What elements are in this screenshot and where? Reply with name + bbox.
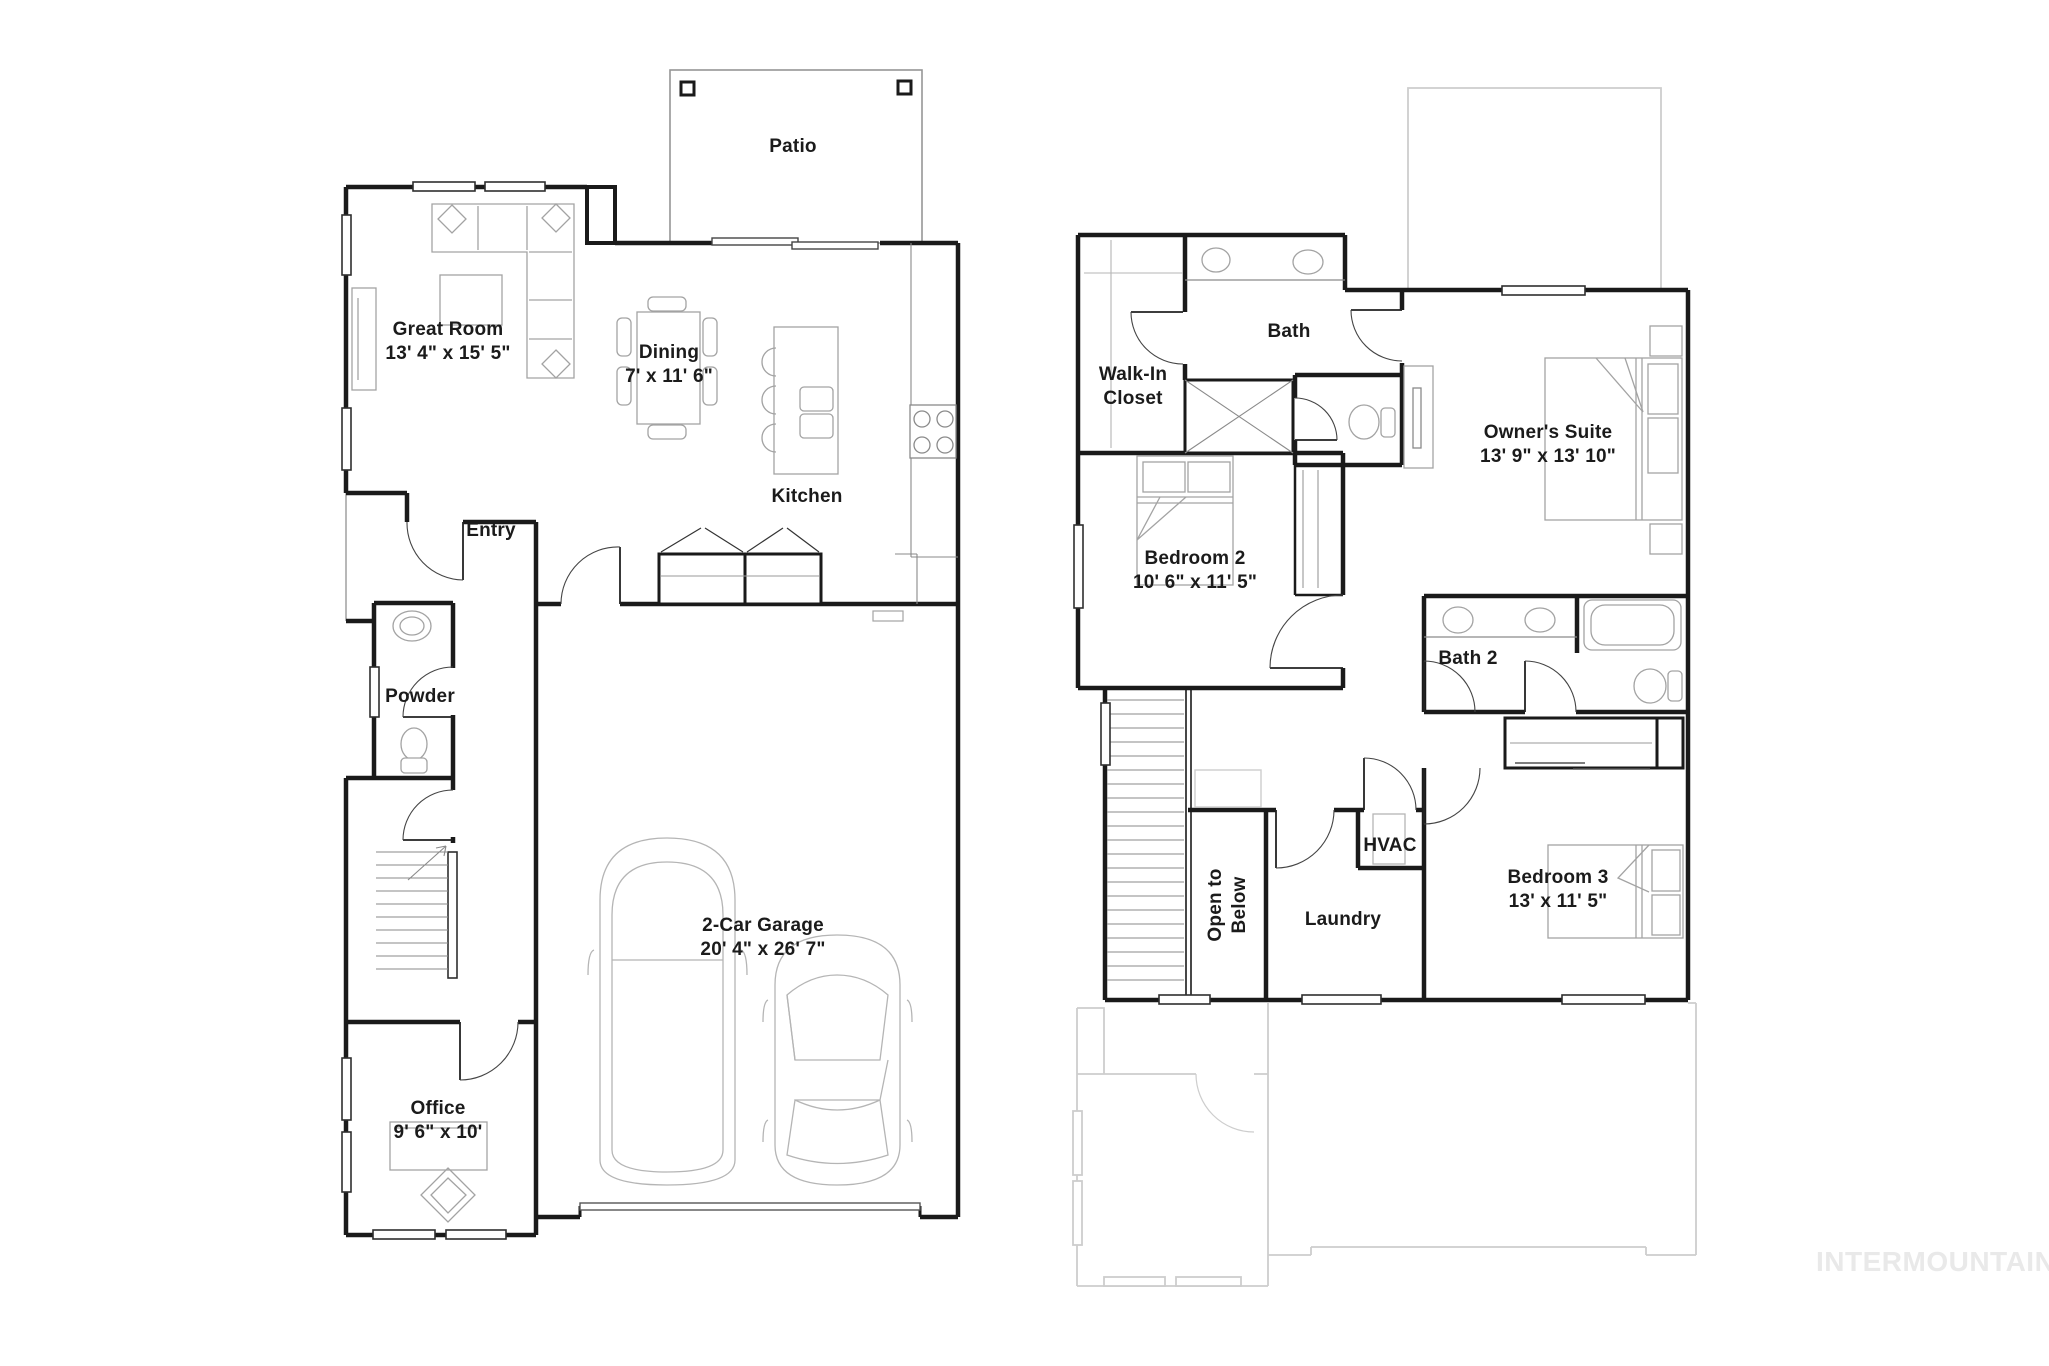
hvac-label: HVAC xyxy=(1363,834,1416,858)
room-dims: 9' 6" x 10' xyxy=(394,1121,483,1145)
room-dims: 20' 4" x 26' 7" xyxy=(700,938,825,962)
kitchen-island-icon xyxy=(762,327,838,474)
powder-toilet-icon xyxy=(401,728,427,773)
entry-label: Entry xyxy=(466,519,516,543)
bath2-toilet-icon xyxy=(1634,669,1682,703)
room-name: Entry xyxy=(466,519,516,543)
shower-icon xyxy=(1185,380,1293,453)
bath-vanity-icon xyxy=(1185,248,1345,280)
closet-shelves xyxy=(1084,240,1183,448)
stairs-second-floor xyxy=(1107,700,1184,980)
garage-step xyxy=(873,611,903,621)
second-floor xyxy=(1073,88,1696,1286)
first-floor xyxy=(342,70,958,1239)
watermark: INTERMOUNTAIN xyxy=(1816,1246,2049,1278)
powder-sink-icon xyxy=(393,611,431,641)
first-floor-doors xyxy=(403,522,620,1080)
sliding-door xyxy=(712,238,878,249)
bath-label: Bath xyxy=(1267,320,1310,344)
room-name: Bath 2 xyxy=(1438,647,1497,671)
garage-door xyxy=(580,1203,920,1217)
hall-closet-second xyxy=(1295,465,1343,595)
patio-label: Patio xyxy=(769,135,816,159)
room-name: Dining xyxy=(625,341,713,365)
bathtub-icon xyxy=(1584,600,1681,650)
roof-outline xyxy=(1408,88,1661,290)
open-to-below-label: Open to Below xyxy=(1204,868,1252,941)
room-name: Below xyxy=(1228,868,1252,941)
office-label: Office 9' 6" x 10' xyxy=(394,1097,483,1145)
kitchen-label: Kitchen xyxy=(771,485,842,509)
walk-in-closet-label: Walk-In Closet xyxy=(1099,363,1167,411)
closet-door-folds xyxy=(661,528,819,552)
hall-closets xyxy=(659,528,821,604)
cooktop-icon xyxy=(910,405,956,458)
dining-label: Dining 7' x 11' 6" xyxy=(625,341,713,389)
room-name: Patio xyxy=(769,135,816,159)
room-name: Bath xyxy=(1267,320,1310,344)
room-name: Laundry xyxy=(1305,908,1381,932)
great-room-label: Great Room 13' 4" x 15' 5" xyxy=(385,318,510,366)
car-icon xyxy=(763,935,912,1185)
room-name: Bedroom 3 xyxy=(1507,866,1608,890)
dresser-icon xyxy=(1404,366,1433,468)
ghost-floor-outline xyxy=(1073,1003,1696,1286)
garage-label: 2-Car Garage 20' 4" x 26' 7" xyxy=(700,914,825,962)
media-console-icon xyxy=(352,288,376,390)
laundry-label: Laundry xyxy=(1305,908,1381,932)
room-name: Owner's Suite xyxy=(1480,421,1616,445)
island-sink-icon xyxy=(800,387,833,411)
open-to-below-shaft xyxy=(1186,688,1261,1000)
owners-suite-label: Owner's Suite 13' 9" x 13' 10" xyxy=(1480,421,1616,469)
bath2-vanity-icon xyxy=(1424,607,1577,637)
room-name: Open to xyxy=(1204,868,1228,941)
bath2-label: Bath 2 xyxy=(1438,647,1497,671)
room-name: HVAC xyxy=(1363,834,1416,858)
stair-rail xyxy=(448,852,457,978)
office-chair-icon xyxy=(421,1168,475,1222)
room-name: Closet xyxy=(1099,387,1167,411)
powder-label: Powder xyxy=(385,685,455,709)
stair-arrow-icon xyxy=(408,846,446,880)
room-dims: 13' 4" x 15' 5" xyxy=(385,342,510,366)
room-name: 2-Car Garage xyxy=(700,914,825,938)
room-dims: 7' x 11' 6" xyxy=(625,365,713,389)
room-dims: 13' 9" x 13' 10" xyxy=(1480,445,1616,469)
room-dims: 13' x 11' 5" xyxy=(1507,890,1608,914)
truck-icon xyxy=(588,838,747,1185)
room-name: Kitchen xyxy=(771,485,842,509)
room-name: Office xyxy=(394,1097,483,1121)
bedroom2-label: Bedroom 2 10' 6" x 11' 5" xyxy=(1133,547,1257,595)
wall-jog xyxy=(587,187,615,243)
floorplan-page: Patio Great Room 13' 4" x 15' 5" Dining … xyxy=(0,0,2049,1366)
wc-toilet-icon xyxy=(1349,405,1395,439)
patio-post-icon xyxy=(898,81,911,94)
room-name: Bedroom 2 xyxy=(1133,547,1257,571)
room-name: Walk-In xyxy=(1099,363,1167,387)
floorplan-drawing xyxy=(0,0,2049,1366)
room-name: Powder xyxy=(385,685,455,709)
bedroom3-closet xyxy=(1505,718,1683,769)
room-name: Great Room xyxy=(385,318,510,342)
patio-post-icon xyxy=(681,82,694,95)
room-dims: 10' 6" x 11' 5" xyxy=(1133,571,1257,595)
bedroom3-label: Bedroom 3 13' x 11' 5" xyxy=(1507,866,1608,914)
stairs-first-floor xyxy=(376,846,448,969)
